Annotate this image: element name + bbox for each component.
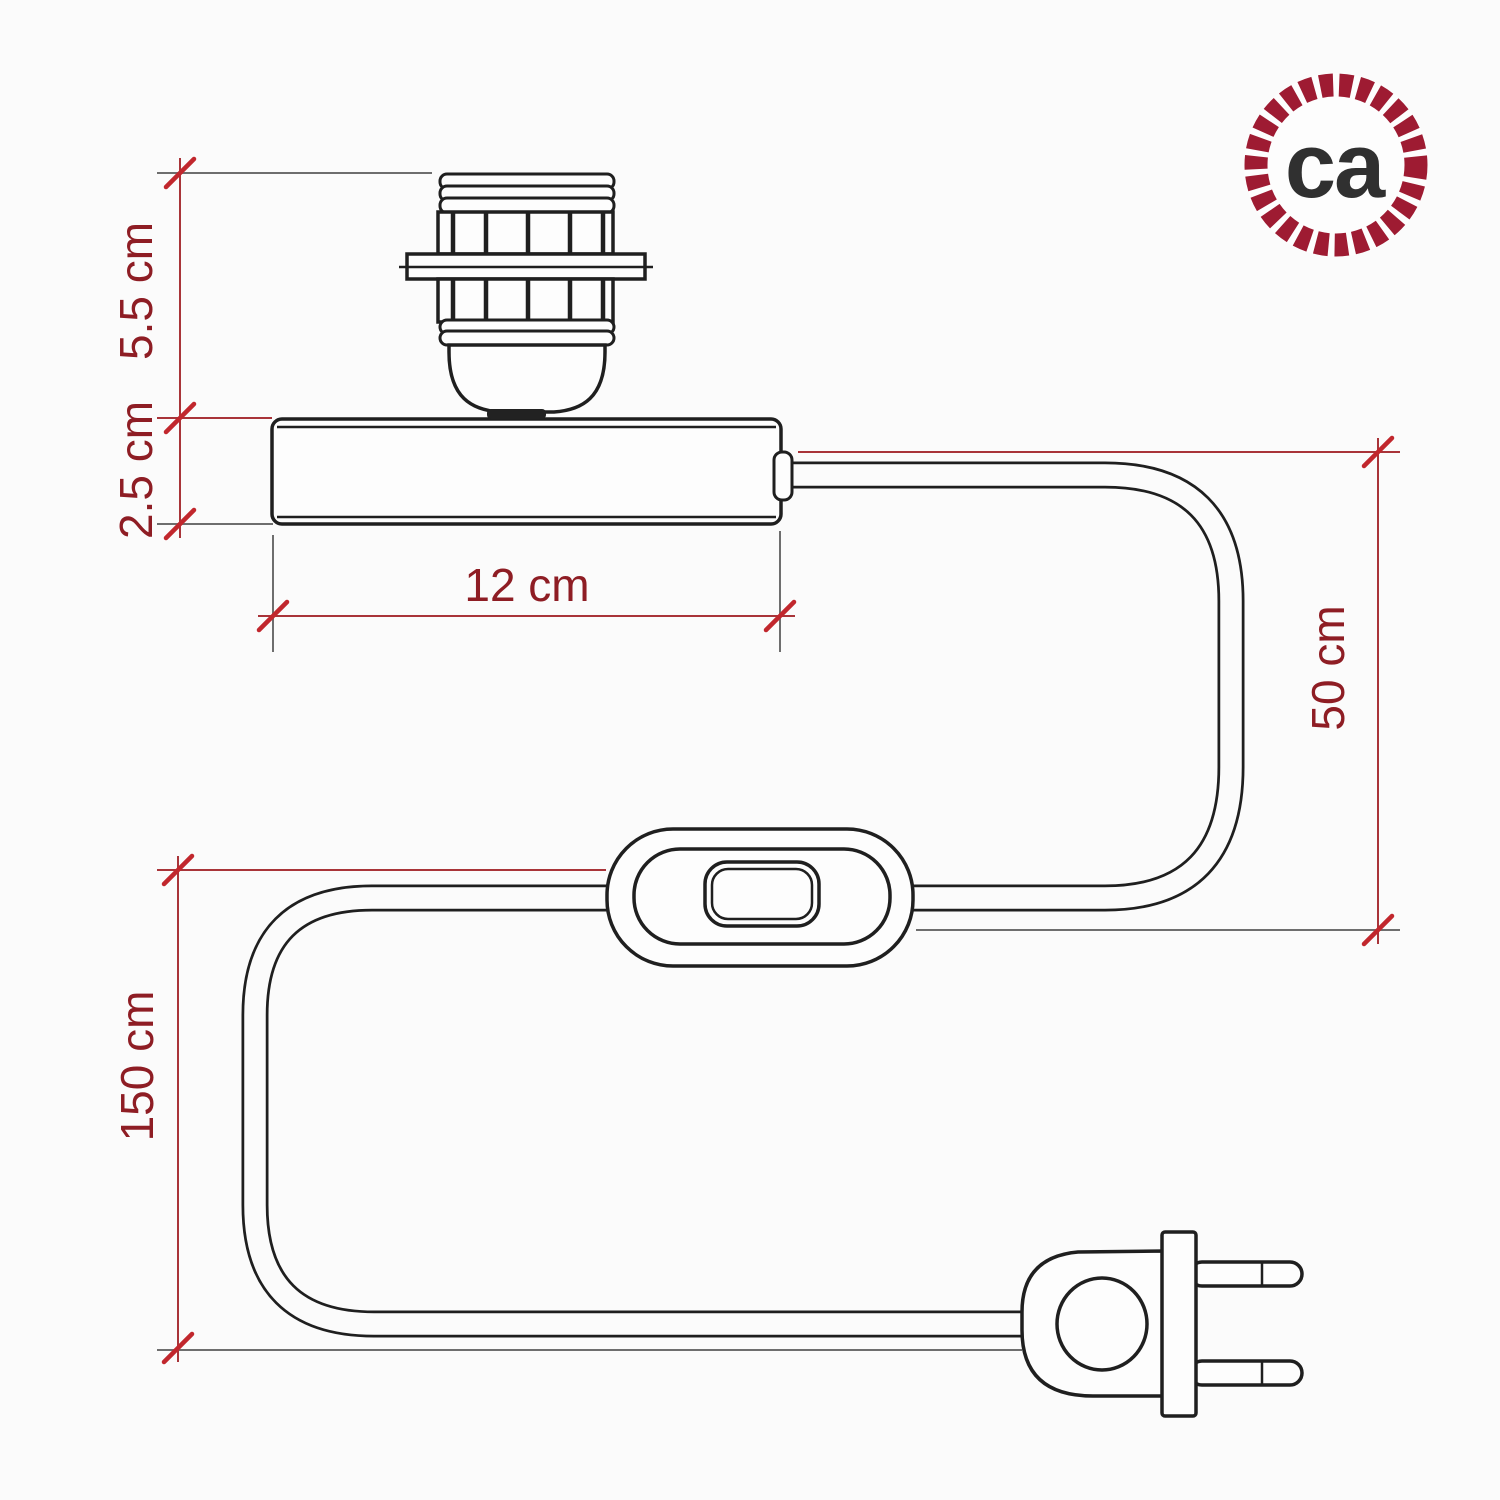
socket-upper-cage — [438, 212, 613, 254]
dimension-ticks — [164, 159, 1392, 1362]
power-plug — [1022, 1232, 1302, 1416]
socket-upper-threads — [440, 174, 614, 213]
diagram-canvas: 5.5 cm 2.5 cm 12 cm 50 cm 150 cm — [0, 0, 1500, 1500]
plug-body-circle — [1057, 1278, 1147, 1370]
label-cable-to-switch: 50 cm — [1302, 605, 1354, 730]
socket-foot — [487, 409, 546, 419]
thread-ridge — [440, 331, 614, 345]
base-body — [272, 419, 781, 524]
logo-text: ca — [1285, 115, 1386, 217]
plug-pin-top — [1190, 1262, 1302, 1286]
socket-lower-cage — [438, 279, 613, 322]
label-socket-height: 5.5 cm — [110, 222, 162, 360]
plug-pins — [1190, 1262, 1302, 1385]
socket-lower-threads — [440, 320, 614, 345]
product-dimension-diagram: 5.5 cm 2.5 cm 12 cm 50 cm 150 cm — [0, 0, 1500, 1500]
cable-gland — [774, 452, 792, 500]
brand-logo: ca — [1244, 73, 1428, 257]
label-base-width: 12 cm — [464, 559, 589, 611]
dimension-lines — [178, 158, 1378, 1362]
extension-lines — [157, 173, 1400, 1350]
shade-ring-flange — [399, 254, 653, 279]
inline-switch — [607, 829, 913, 966]
plug-pin-bottom — [1190, 1361, 1302, 1385]
plug-face-plate — [1162, 1232, 1196, 1416]
dimension-labels: 5.5 cm 2.5 cm 12 cm 50 cm 150 cm — [110, 222, 1354, 1141]
lamp-socket — [399, 174, 653, 419]
lamp-base — [272, 419, 792, 524]
socket-cup — [449, 345, 605, 412]
label-base-height: 2.5 cm — [110, 401, 162, 539]
switch-rocker-button — [705, 862, 819, 926]
label-total-cable: 150 cm — [111, 991, 163, 1142]
